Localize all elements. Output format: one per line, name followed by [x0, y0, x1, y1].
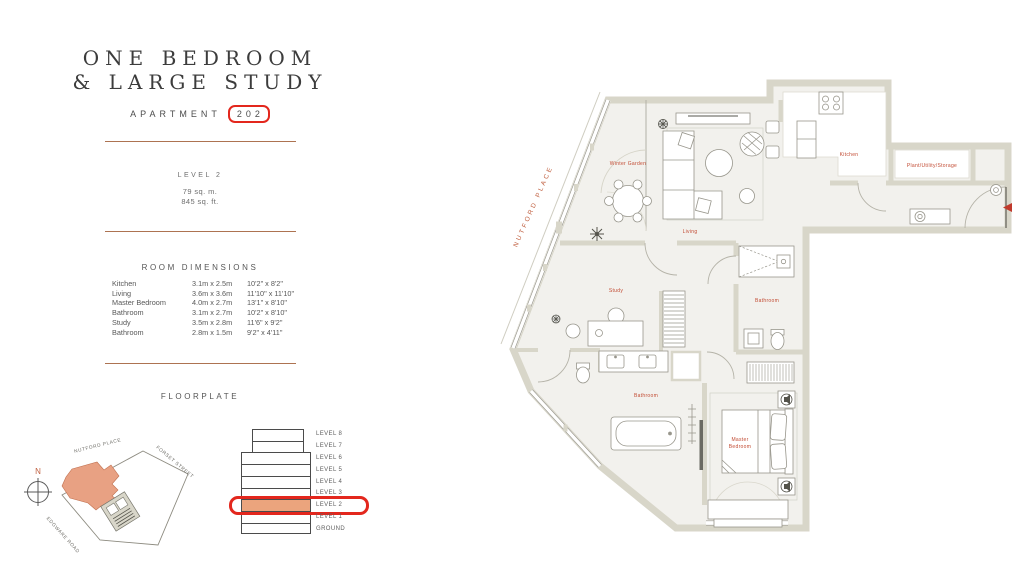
kitchen-label: Kitchen [840, 152, 859, 158]
brochure-page: ONE BEDROOM & LARGE STUDY APARTMENT 202 … [0, 0, 1024, 582]
master-bedroom-label: Master [731, 437, 748, 443]
plant-icon [590, 227, 604, 241]
room-dimensions-heading: ROOM DIMENSIONS [70, 263, 330, 272]
title-line-1: ONE BEDROOM [70, 46, 330, 70]
table-row: Master Bedroom4.0m x 2.7m13'1" x 8'10" [112, 298, 308, 308]
wardrobe [747, 362, 794, 383]
table-row: Living3.6m x 3.6m11'10" x 11'10" [112, 289, 308, 299]
stack-label-level6: LEVEL 6 [316, 455, 376, 461]
living-label: Living [683, 229, 698, 235]
stack-line [241, 523, 311, 524]
stack-label-level2: LEVEL 2 [316, 502, 376, 508]
stack-line [241, 476, 311, 477]
plan-street-label: NUTFORD PLACE [512, 164, 554, 248]
apartment-number-highlight: 202 [228, 105, 270, 123]
stack-label-level7: LEVEL 7 [316, 443, 376, 449]
stack-label-level3: LEVEL 3 [316, 490, 376, 496]
title-line-2: & LARGE STUDY [70, 70, 330, 94]
page-title: ONE BEDROOM & LARGE STUDY [70, 46, 330, 94]
stack-label-level5: LEVEL 5 [316, 467, 376, 473]
service-duct [672, 352, 700, 380]
master-bedroom-label-2: Bedroom [729, 444, 751, 450]
plant-utility-label: Plant/Utility/Storage [907, 163, 957, 169]
stack-label-ground: GROUND [316, 526, 376, 532]
bathroom-lower-label: Bathroom [634, 393, 658, 399]
stack-line [241, 488, 311, 489]
level-label: LEVEL 2 [70, 172, 330, 179]
divider-rule-1 [105, 141, 296, 142]
mirror [700, 420, 704, 470]
stairs [663, 291, 685, 347]
study-label: Study [609, 288, 623, 294]
ceiling-fixture-icon [659, 120, 668, 129]
street-edgware-road: EDGWARE ROAD [45, 516, 81, 555]
winter-garden-label: Winter Garden [610, 161, 646, 167]
table-row: Bathroom2.8m x 1.5m9'2" x 4'11" [112, 328, 308, 338]
apartment-row: APARTMENT 202 [70, 105, 330, 123]
stack-label-level1: LEVEL 1 [316, 514, 376, 520]
table-row: Kitchen3.1m x 2.5m10'2" x 8'2" [112, 279, 308, 289]
divider-rule-2 [105, 231, 296, 232]
floorplate-heading: FLOORPLATE [70, 392, 330, 401]
table-row: Study3.5m x 2.8m11'6" x 9'2" [112, 318, 308, 328]
street-nutford-place: NUTFORD PLACE [74, 437, 122, 455]
area-imperial: 845 sq. ft. [70, 197, 330, 206]
room-dimensions-table: Kitchen3.1m x 2.5m10'2" x 8'2" Living3.6… [112, 279, 308, 337]
site-map: N NUTFORD PLACE FORSET STREET EDGWARE RO… [10, 428, 235, 578]
compass-icon [24, 478, 52, 506]
table-row: Bathroom3.1m x 2.7m10'2" x 8'10" [112, 308, 308, 318]
radiator-icon [552, 315, 560, 323]
stack-label-level8: LEVEL 8 [316, 431, 376, 437]
stack-line [252, 441, 304, 442]
north-label: N [35, 467, 41, 476]
area-metric: 79 sq. m. [70, 187, 330, 196]
stack-line [241, 464, 311, 465]
divider-rule-3 [105, 363, 296, 364]
floor-plan: NUTFORD PLACE Winter Garden Living Kitch… [498, 40, 1024, 580]
apartment-label: APARTMENT [130, 109, 221, 119]
bathroom-upper-label: Bathroom [755, 298, 779, 304]
stack-label-level4: LEVEL 4 [316, 479, 376, 485]
